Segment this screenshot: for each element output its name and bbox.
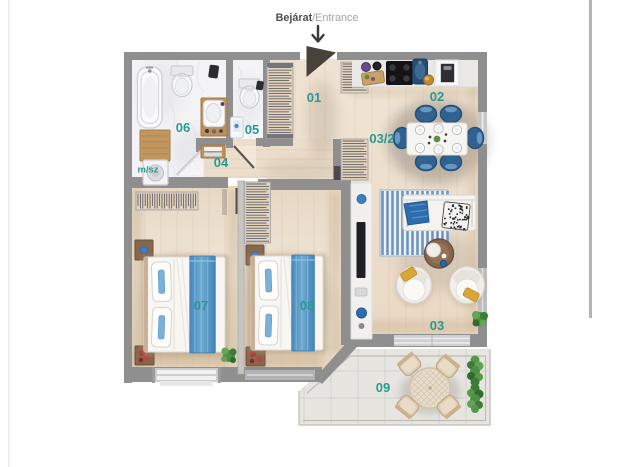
svg-text:03/2: 03/2 <box>369 131 394 146</box>
svg-text:08: 08 <box>300 298 314 313</box>
svg-text:01: 01 <box>307 90 321 105</box>
svg-text:04: 04 <box>214 155 229 170</box>
svg-text:06: 06 <box>176 120 190 135</box>
svg-text:Bejárat/Entrance: Bejárat/Entrance <box>276 12 359 24</box>
svg-text:07: 07 <box>194 298 208 313</box>
svg-text:02: 02 <box>430 89 444 104</box>
svg-text:09: 09 <box>376 380 390 395</box>
svg-text:05: 05 <box>245 122 259 137</box>
svg-text:03: 03 <box>430 318 444 333</box>
svg-text:m/sz: m/sz <box>137 165 158 176</box>
